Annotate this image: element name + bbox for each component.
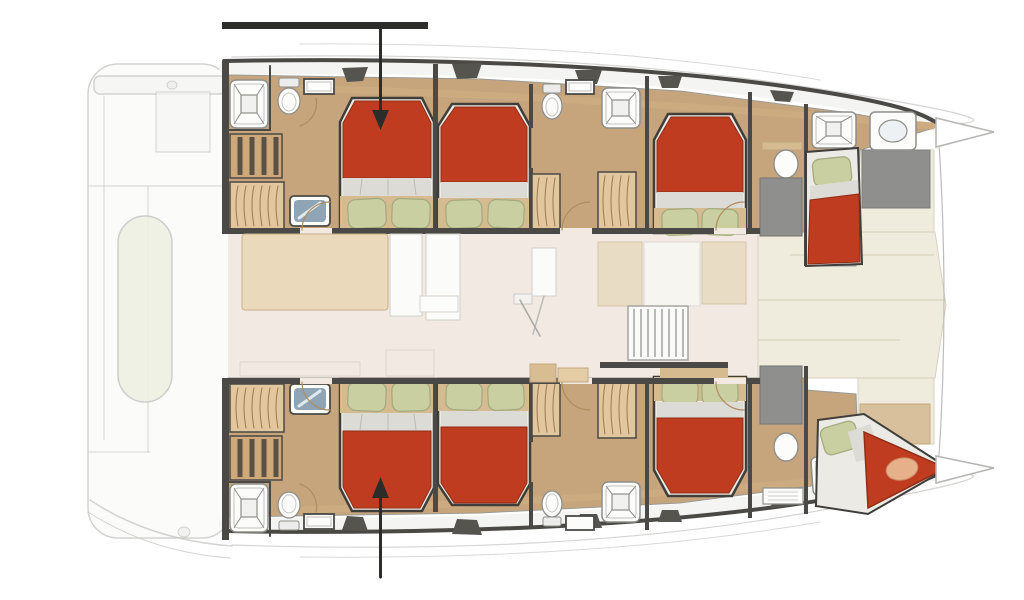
pillow-cabin1-bottom-b [392,381,431,411]
shower-drain-mid-top [612,100,629,116]
catamaran-floorplan-canvas: Catamaran yacht deck floor plan, bow to … [0,0,1024,600]
door-gap-bottom-1 [300,378,332,384]
pillow-cabin2-top-a [446,199,483,228]
toilet-bowl-aft-top [278,88,300,114]
saloon-fridge [532,248,556,296]
sink-counter-aft-top [304,79,334,94]
bulkhead-aft-top [222,62,229,234]
pillow-cabin2-bottom-b [487,381,524,411]
stern-crossbeam [94,76,226,94]
bed-sheet-cabin3-bottom [657,402,743,418]
shower-drain-mid-bottom [612,494,629,510]
door-gap-bottom-3 [714,378,746,384]
fore-cabin-wall-seg [600,362,728,368]
galley-block-2 [558,368,588,382]
locker-mid-bottom-b [598,380,636,438]
pillow-cabin1-top-a [347,198,386,229]
pillow-cabin1-bottom-a [347,381,386,412]
galley-white-block [420,296,458,312]
bed-duvet-cabin2-top [441,107,527,182]
galley-hatch [514,294,532,304]
sink-oval-fore-top [879,120,907,142]
stern-crossbeam-bolt [167,81,177,89]
gray-module-fore-bottom [760,366,802,424]
toilet-tank-mid-bottom [543,517,561,526]
foredeck-upper-gray-locker [862,150,930,208]
toilet-bowl-aft-bottom [278,492,300,518]
fore-cabin-wood-seg [660,368,728,378]
door-gap-top-2 [560,228,592,234]
saloon-panel-a [598,242,642,306]
bed-duvet-cabin3-bottom [657,418,743,493]
door-gap-top-1 [300,228,332,234]
shower-drain-aft-top [241,95,257,113]
bulkhead-aft-bottom [222,378,229,540]
saloon-panel-c [702,242,746,304]
toilet-tank-mid-top [543,84,561,93]
cabin-wall-top-2r-upper [529,84,533,128]
saloon-table [242,234,388,310]
galley-block-1 [530,364,556,382]
berth-duvet-forepeak-top [808,194,860,264]
deck-hatch-top-5 [770,90,794,102]
bed-sheet-cabin1-bottom [343,413,431,431]
cabin-wall-bottom-3r [748,378,752,518]
sink-counter-mid-top [566,80,594,94]
companionway-stairs [628,306,688,360]
cabin-wall-top-3r [748,92,752,232]
bed-duvet-cabin2-bottom [441,427,527,503]
cabin-wall-top-mid [645,76,649,232]
bed-sheet-cabin2-bottom [441,411,527,427]
bed-sheet-cabin1-top [343,178,431,196]
saloon-counter-a [390,234,422,316]
deck-hatch-bottom-4 [658,510,682,522]
cockpit-table [118,216,172,402]
toilet-bowl-mid-top [542,93,562,119]
bow-tip-top [936,118,994,147]
forepeak-wall-bottom [804,366,808,514]
bow-tip-bottom [936,456,994,483]
toilet-tank-aft-top [279,78,299,87]
annotation-top-bar [222,22,428,29]
door-gap-top-3 [714,228,746,234]
deck-hatch-top-4 [658,76,682,88]
toilet-tank-aft-bottom [279,521,299,530]
saloon-panel-b [644,242,700,306]
toilet-bowl-mid-bottom [542,491,562,517]
stern-cleat [178,527,190,537]
floorplan-page: Catamaran yacht deck floor plan, bow to … [0,0,1024,600]
bed-duvet-cabin3-top [657,117,743,192]
deck-hatch-top-2 [452,63,482,79]
stern-inner-panel [156,92,210,152]
shelf-fore-top [762,142,802,150]
locker-mid-top-b [598,172,636,230]
shower-drain-aft-bottom [241,499,257,517]
pillow-cabin1-top-b [391,198,430,228]
cabin-wall-bottom-2r-lower [529,482,533,526]
sink-counter-mid-bottom [566,516,594,530]
sink-pedestal-fore-bottom [774,433,798,461]
pillow-cabin2-top-b [487,199,524,229]
pillow-cabin2-bottom-a [446,381,483,410]
shower-drain-fore-top [826,122,841,136]
bed-sheet-cabin2-top [441,182,527,198]
sink-counter-aft-bottom [304,514,334,529]
cabin-wall-bottom-mid [645,378,649,530]
sink-pedestal-fore-top [774,150,798,178]
gray-module-fore-top [760,178,802,236]
